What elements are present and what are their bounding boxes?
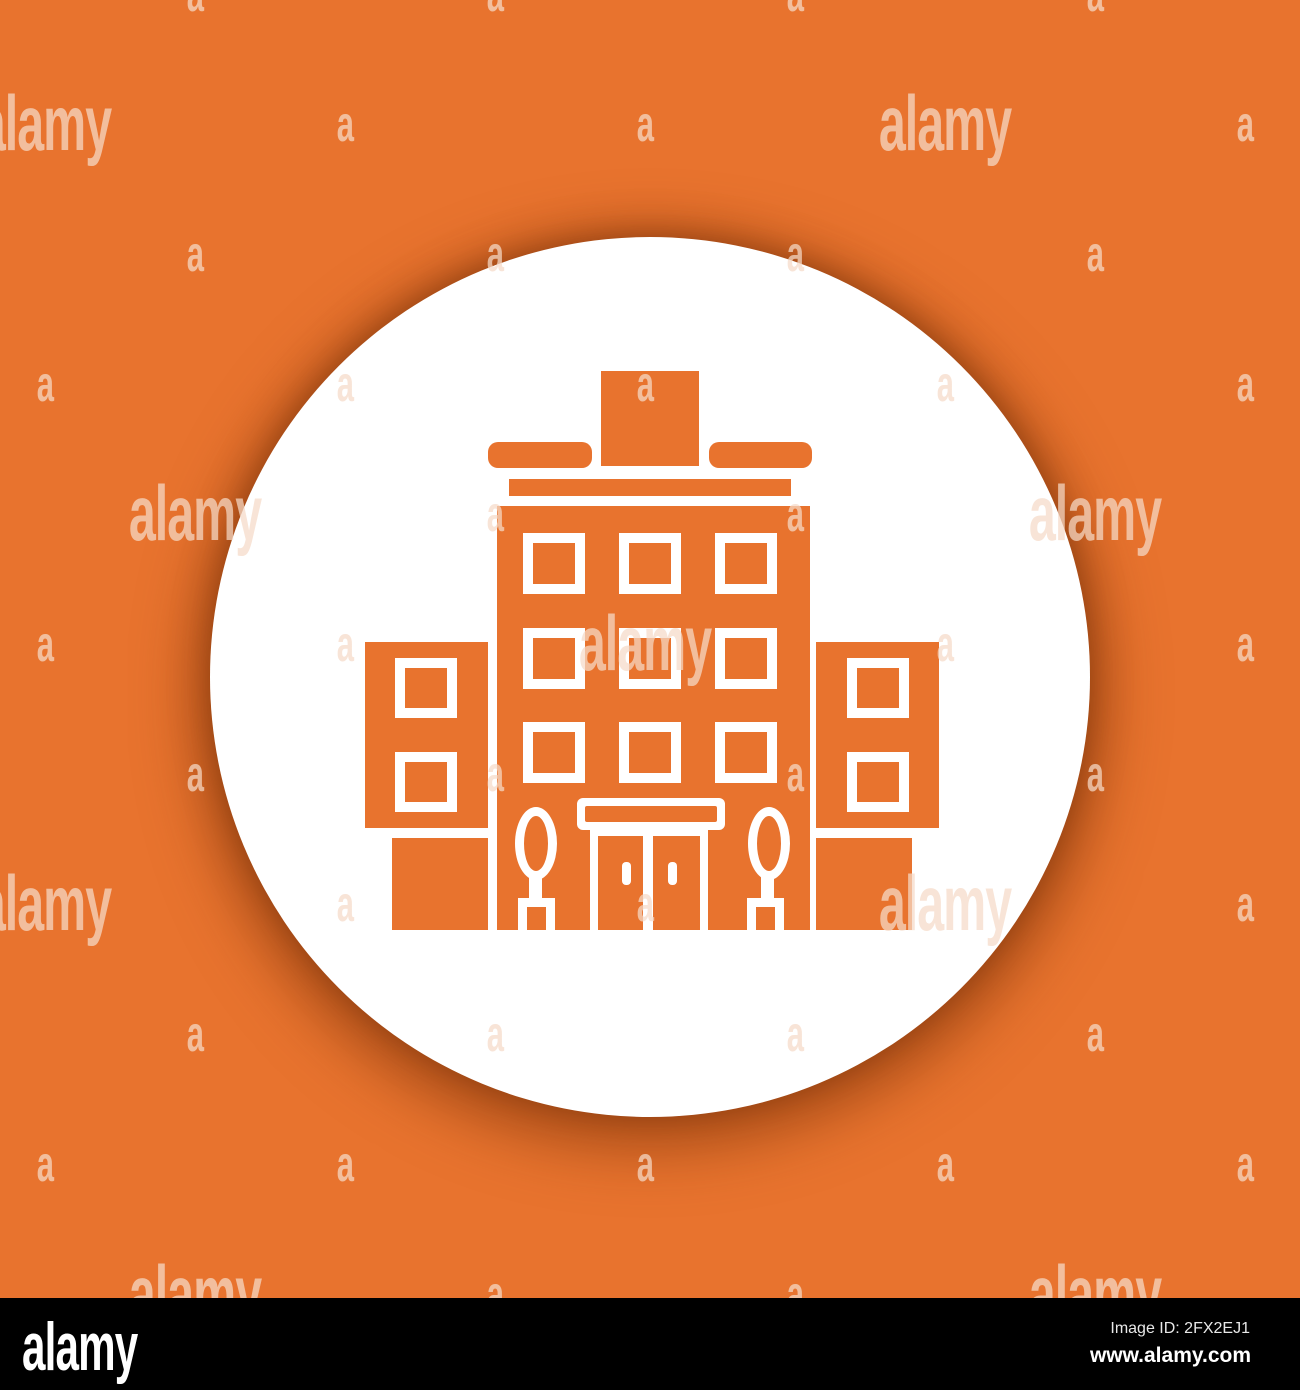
rooftop-bar-left <box>488 442 592 468</box>
tower-window <box>715 722 777 783</box>
door-handle <box>622 862 631 885</box>
alamy-watermark-mark: a <box>937 1139 954 1189</box>
alamy-watermark-mark: a <box>337 99 354 149</box>
right-annex-base <box>816 838 912 930</box>
tree-planter <box>747 898 784 930</box>
alamy-watermark-mark: a <box>1237 359 1254 409</box>
alamy-watermark-mark: a <box>1087 229 1104 279</box>
tower-window <box>523 628 585 689</box>
alamy-watermark-mark: a <box>337 1139 354 1189</box>
alamy-watermark-mark: a <box>187 0 204 19</box>
stock-image-canvas: aaaaalamyaaalamyaaaaaaaaaaalamyaaalamyaa… <box>0 0 1300 1390</box>
annex-window <box>395 658 457 718</box>
annex-window <box>395 752 457 812</box>
rooftop-sign-block <box>601 371 699 466</box>
annex-window <box>847 752 909 812</box>
tower-window <box>523 722 585 783</box>
alamy-watermark-mark: a <box>637 99 654 149</box>
alamy-watermark-logo: alamy <box>0 864 111 942</box>
image-id-label: Image ID: 2FX2EJ1 <box>1110 1320 1250 1338</box>
alamy-watermark-mark: a <box>37 359 54 409</box>
entrance-door-left <box>598 836 643 930</box>
tower-window <box>715 533 777 594</box>
alamy-watermark-mark: a <box>187 1009 204 1059</box>
alamy-watermark-mark: a <box>1237 1139 1254 1189</box>
alamy-watermark-mark: a <box>37 1139 54 1189</box>
alamy-watermark-mark: a <box>37 619 54 669</box>
alamy-watermark-mark: a <box>1087 1009 1104 1059</box>
alamy-watermark-mark: a <box>187 749 204 799</box>
left-annex-base <box>392 838 488 930</box>
rooftop-bar-right <box>709 442 812 468</box>
roof-ledge <box>509 479 791 496</box>
alamy-watermark-mark: a <box>487 0 504 19</box>
alamy-watermark-mark: a <box>1087 749 1104 799</box>
alamy-watermark-mark: a <box>187 229 204 279</box>
tower-window <box>619 628 681 689</box>
entrance-tree-left <box>515 807 557 880</box>
entrance-tree-right <box>748 807 790 880</box>
alamy-watermark-mark: a <box>787 0 804 19</box>
alamy-watermark-logo: alamy <box>0 84 111 162</box>
alamy-watermark-logo: alamy <box>879 84 1011 162</box>
alamy-watermark-mark: a <box>1237 619 1254 669</box>
alamy-logo: alamy <box>22 1313 137 1381</box>
entrance-door-right <box>653 836 700 930</box>
alamy-watermark-mark: a <box>1087 0 1104 19</box>
alamy-watermark-mark: a <box>1237 99 1254 149</box>
door-handle <box>668 862 677 885</box>
annex-window <box>847 658 909 718</box>
tower-window <box>619 533 681 594</box>
tree-planter <box>518 898 555 930</box>
alamy-watermark-mark: a <box>1237 879 1254 929</box>
alamy-watermark-mark: a <box>637 1139 654 1189</box>
entrance-canopy <box>577 798 725 830</box>
tower-window <box>523 533 585 594</box>
tower-window <box>715 628 777 689</box>
tower-window <box>619 722 681 783</box>
alamy-url: www.alamy.com <box>1090 1344 1251 1368</box>
